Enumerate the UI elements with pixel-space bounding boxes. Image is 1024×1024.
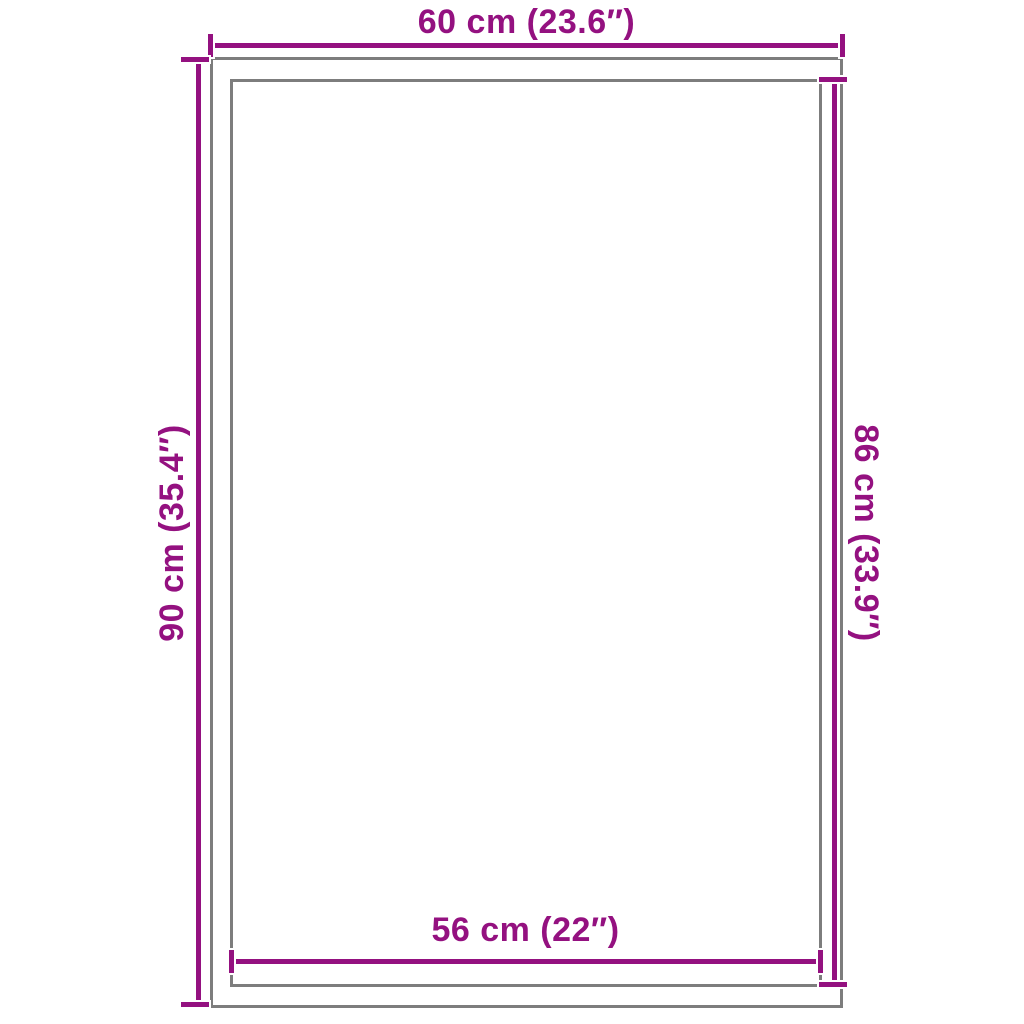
dimension-tick-left-bottom (181, 1002, 209, 1007)
dimension-tick-bottom-right (818, 950, 823, 973)
dimension-tick-left-top (181, 57, 209, 62)
dimension-tick-bottom-left (229, 950, 234, 973)
dimension-line-left (196, 57, 201, 1007)
dimension-label-bottom: 56 cm (22″) (231, 910, 820, 950)
dimension-label-left: 90 cm (35.4″) (152, 333, 192, 733)
dimension-tick-right-top (819, 77, 847, 82)
dimension-line-bottom (231, 959, 820, 964)
product-inner-outline (230, 79, 822, 987)
dimension-line-top (210, 43, 843, 48)
dimension-diagram: 60 cm (23.6″) 90 cm (35.4″) 86 cm (33.9″… (0, 0, 1024, 1024)
dimension-tick-right-bottom (819, 982, 847, 987)
dimension-label-right: 86 cm (33.9″) (846, 333, 886, 733)
dimension-line-right (832, 79, 837, 985)
dimension-label-top: 60 cm (23.6″) (210, 2, 843, 42)
